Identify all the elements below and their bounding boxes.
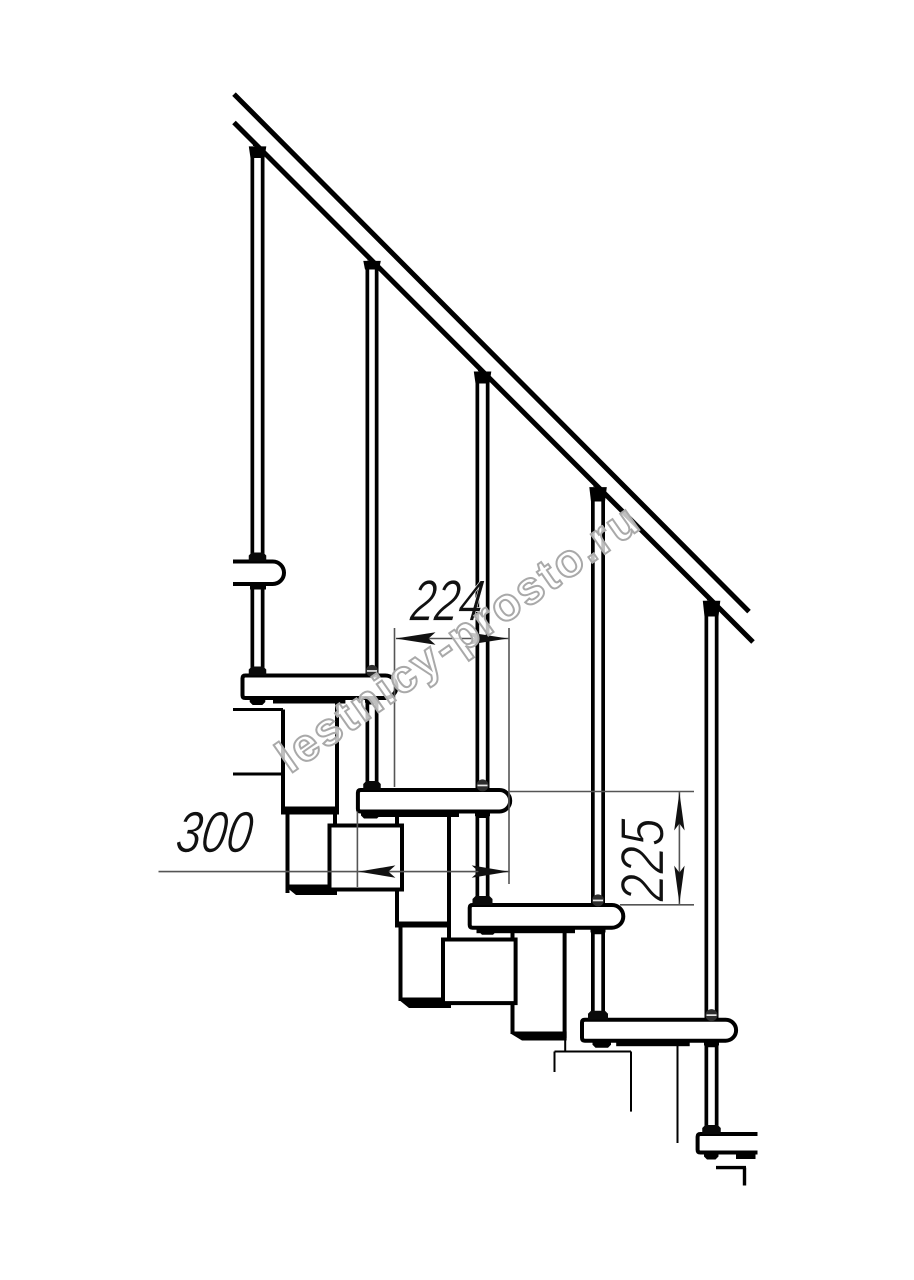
svg-text:225: 225 bbox=[609, 817, 677, 902]
svg-text:300: 300 bbox=[172, 801, 257, 865]
